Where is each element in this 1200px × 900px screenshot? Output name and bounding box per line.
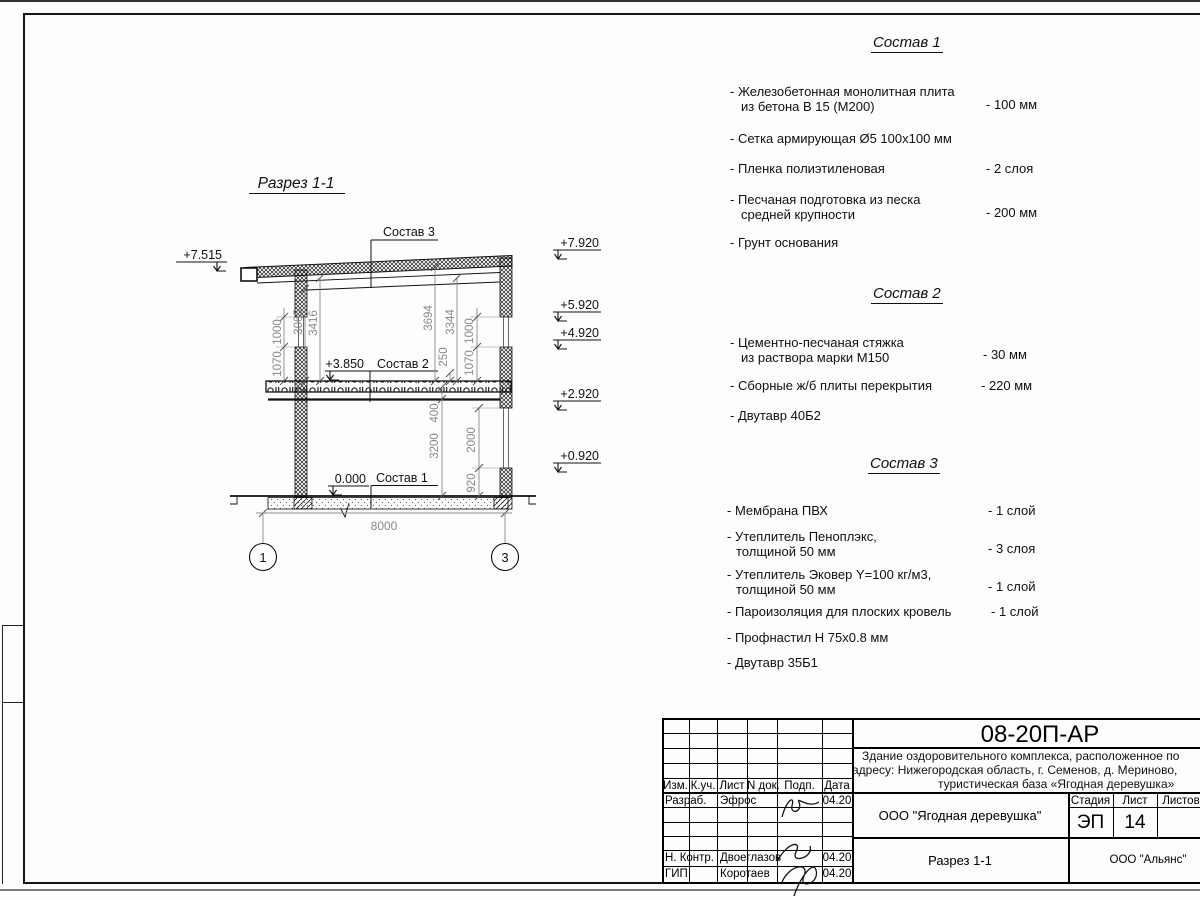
col-list: Лист xyxy=(717,780,747,792)
list-item-name: из раствора марки М150 xyxy=(741,350,889,365)
grid-axes: 1 3 xyxy=(250,544,519,571)
list-item-name: - Двутавр 35Б1 xyxy=(727,655,818,670)
callout-roof: Состав 3 xyxy=(371,225,438,288)
drawing-name: Разрез 1-1 xyxy=(852,853,1068,868)
elevation-mark: +5.920 xyxy=(553,298,601,321)
elevation-value: +3.850 xyxy=(325,357,364,371)
list-item-name: - Мембрана ПВХ xyxy=(727,503,828,518)
margin-edge xyxy=(2,625,3,884)
list-item-name: - Утеплитель Эковер Y=100 кг/м3, xyxy=(727,567,931,582)
org-name: ООО "Ягодная деревушка" xyxy=(852,808,1068,823)
gutter-box xyxy=(241,268,257,281)
col-ndok: N док. xyxy=(747,780,777,792)
list-item-value: - 1 слой xyxy=(988,579,1036,594)
elevation-value: +5.920 xyxy=(560,298,599,312)
dim-label: 3694 xyxy=(423,305,435,331)
elevation-mark: +7.515 xyxy=(176,248,227,271)
col-podp: Подп. xyxy=(777,780,822,792)
project-desc-line2: адресу: Нижегородская область, г. Семено… xyxy=(852,763,1177,777)
list-item-value: - 30 мм xyxy=(983,347,1027,362)
list-item-name: - Железобетонная монолитная плита xyxy=(730,84,955,99)
section-title-text: Разрез 1-1 xyxy=(258,175,335,192)
list-item-name: - Утеплитель Пеноплэкс, xyxy=(727,529,877,544)
dim-label: 3200 xyxy=(429,433,441,459)
elevation-value: +4.920 xyxy=(560,326,599,340)
company-name: ООО "Альянс" xyxy=(1068,854,1200,866)
callout-slab: Состав 2 xyxy=(366,357,438,402)
sheets-label: Листов xyxy=(1157,795,1200,807)
list-item-value: - 200 мм xyxy=(986,205,1037,220)
row-role: Разраб. xyxy=(665,795,706,807)
elevation-mark: +3.850 xyxy=(325,357,367,380)
col-data: Дата xyxy=(822,780,852,792)
sheet-value: 14 xyxy=(1113,812,1157,834)
col-kuch: К.уч. xyxy=(689,780,717,792)
callout-label: Состав 3 xyxy=(383,225,435,239)
list-item-name: толщиной 50 мм xyxy=(736,544,836,559)
row-date: 04.20 xyxy=(822,795,852,807)
project-desc-line3: туристическая база «Ягодная деревушка» xyxy=(938,777,1174,791)
axis-label: 3 xyxy=(501,550,508,565)
dim-label: 3344 xyxy=(445,309,457,335)
dim-label: 2000 xyxy=(466,427,478,453)
list-item-value: - 1 слой xyxy=(991,604,1039,619)
list-item-name: - Сборные ж/б плиты перекрытия xyxy=(730,378,932,393)
signature xyxy=(770,838,834,900)
list-item-name: - Пароизоляция для плоских кровель xyxy=(727,604,951,619)
col-izm: Изм. xyxy=(662,780,689,792)
walls xyxy=(295,258,512,497)
list-item-name: из бетона В 15 (М200) xyxy=(741,99,875,114)
drawing-sheet: Разрез 1-1 xyxy=(0,0,1200,900)
list-item-value: - 1 слой xyxy=(988,503,1036,518)
roof-assembly xyxy=(241,256,512,291)
row-role: Н. Контр. xyxy=(665,852,714,864)
elevation-mark: +4.920 xyxy=(553,326,601,349)
callout-label: Состав 1 xyxy=(376,471,428,485)
list-title: Состав 2 xyxy=(871,285,943,304)
elevation-value: +0.920 xyxy=(560,449,599,463)
dim-label: 250 xyxy=(438,347,450,366)
list-item-name: - Пленка полиэтиленовая xyxy=(730,161,885,176)
list-item-name: толщиной 50 мм xyxy=(736,582,836,597)
dim-label: 1000 xyxy=(464,318,476,344)
list-item-value: - 3 слоя xyxy=(988,541,1035,556)
list-item-name: - Сетка армирующая Ø5 100х100 мм xyxy=(730,131,952,146)
list-item-name: - Песчаная подготовка из песка xyxy=(730,192,920,207)
dim-label: 920 xyxy=(466,473,478,492)
callout-label: Состав 2 xyxy=(377,357,429,371)
elevation-mark: +7.920 xyxy=(553,236,601,259)
list-item-name: - Цементно-песчаная стяжка xyxy=(730,335,904,350)
list-item-value: - 220 мм xyxy=(981,378,1032,393)
section-drawing: Разрез 1-1 xyxy=(0,0,680,620)
sheet-bottom-edge xyxy=(0,889,1200,891)
elevation-mark: +2.920 xyxy=(553,387,601,410)
dim-label: 1070 xyxy=(272,351,284,377)
dim-label: 1070 xyxy=(464,350,476,376)
doc-number: 08-20П-АР xyxy=(940,721,1140,749)
list-title: Состав 1 xyxy=(871,34,943,53)
list-title: Состав 3 xyxy=(868,455,940,474)
row-name: Коротаев xyxy=(720,868,770,880)
dim-label: 3416 xyxy=(308,310,320,336)
row-role: ГИП xyxy=(665,868,688,880)
project-desc-line1: Здание оздоровительного комплекса, распо… xyxy=(862,749,1179,763)
elevation-value: +7.515 xyxy=(183,248,222,262)
span-dim-label: 8000 xyxy=(371,519,398,533)
elevation-value: +2.920 xyxy=(560,387,599,401)
list-item-value: - 100 мм xyxy=(986,97,1037,112)
elevation-value: 0.000 xyxy=(335,472,366,486)
signature xyxy=(779,793,825,823)
list-item-name: - Профнастил Н 75х0.8 мм xyxy=(727,630,888,645)
dim-label: 400 xyxy=(429,403,441,422)
section-title: Разрез 1-1 xyxy=(249,175,345,194)
elevation-mark: 0.000 xyxy=(328,472,369,495)
sheet-label: Лист xyxy=(1113,795,1157,807)
elevation-mark: +0.920 xyxy=(553,449,601,472)
ground-slab xyxy=(230,496,536,517)
list-item-name: - Грунт основания xyxy=(730,235,838,250)
axis-label: 1 xyxy=(259,550,266,565)
margin-divider xyxy=(2,625,23,626)
row-name: Эфрос xyxy=(720,795,756,807)
dim-label: 1000 xyxy=(272,319,284,345)
list-item-name: - Двутавр 40Б2 xyxy=(730,408,821,423)
dim-label: 3065 xyxy=(293,309,305,335)
list-item-value: - 2 слоя xyxy=(986,161,1033,176)
elevation-value: +7.920 xyxy=(560,236,599,250)
stage-label: Стадия xyxy=(1068,795,1113,807)
margin-divider xyxy=(2,702,23,703)
span-dimension: 8000 xyxy=(256,513,512,543)
list-item-name: средней крупности xyxy=(741,207,855,222)
stage-value: ЭП xyxy=(1068,812,1113,834)
